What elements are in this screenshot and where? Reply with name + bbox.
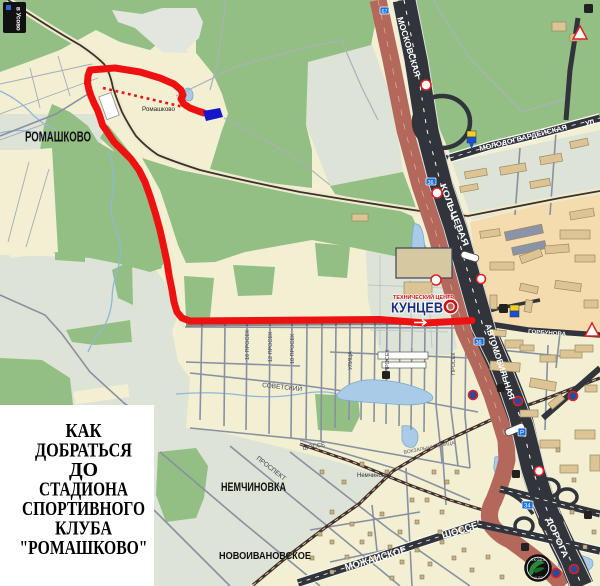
svg-text:"РОМАШКОВО": "РОМАШКОВО": [20, 537, 148, 559]
svg-text:10 ПРОСЕК: 10 ПРОСЕК: [290, 333, 296, 364]
svg-text:36: 36: [428, 180, 434, 186]
svg-text:12 ПРОСЕК: 12 ПРОСЕК: [268, 331, 274, 362]
svg-text:36: 36: [476, 340, 482, 346]
svg-text:34: 34: [524, 504, 531, 510]
svg-text:УЛИЦА: УЛИЦА: [348, 351, 354, 370]
svg-text:P: P: [520, 431, 524, 437]
svg-text:ПРОСЕК: ПРОСЕК: [451, 352, 457, 375]
svg-text:НОВОИВАНОВСКОЕ: НОВОИВАНОВСКОЕ: [219, 551, 311, 562]
svg-text:Немчиновка: Немчиновка: [357, 473, 392, 479]
svg-text:КУНЦЕВ: КУНЦЕВ: [391, 301, 443, 317]
svg-text:в Усово: в Усово: [15, 7, 22, 31]
svg-text:67: 67: [382, 9, 388, 15]
svg-text:Ромашково: Ромашково: [142, 106, 175, 113]
svg-text:16 ПРОСЕК: 16 ПРОСЕК: [245, 329, 251, 360]
svg-text:НЕМЧИНОВКА: НЕМЧИНОВКА: [221, 482, 286, 494]
svg-text:РОМАШКОВО: РОМАШКОВО: [25, 130, 91, 146]
svg-text:ПРОСЕК: ПРОСЕК: [385, 349, 391, 372]
svg-text:AUTO: AUTO: [534, 576, 544, 580]
svg-text:SKODA: SKODA: [531, 558, 546, 562]
